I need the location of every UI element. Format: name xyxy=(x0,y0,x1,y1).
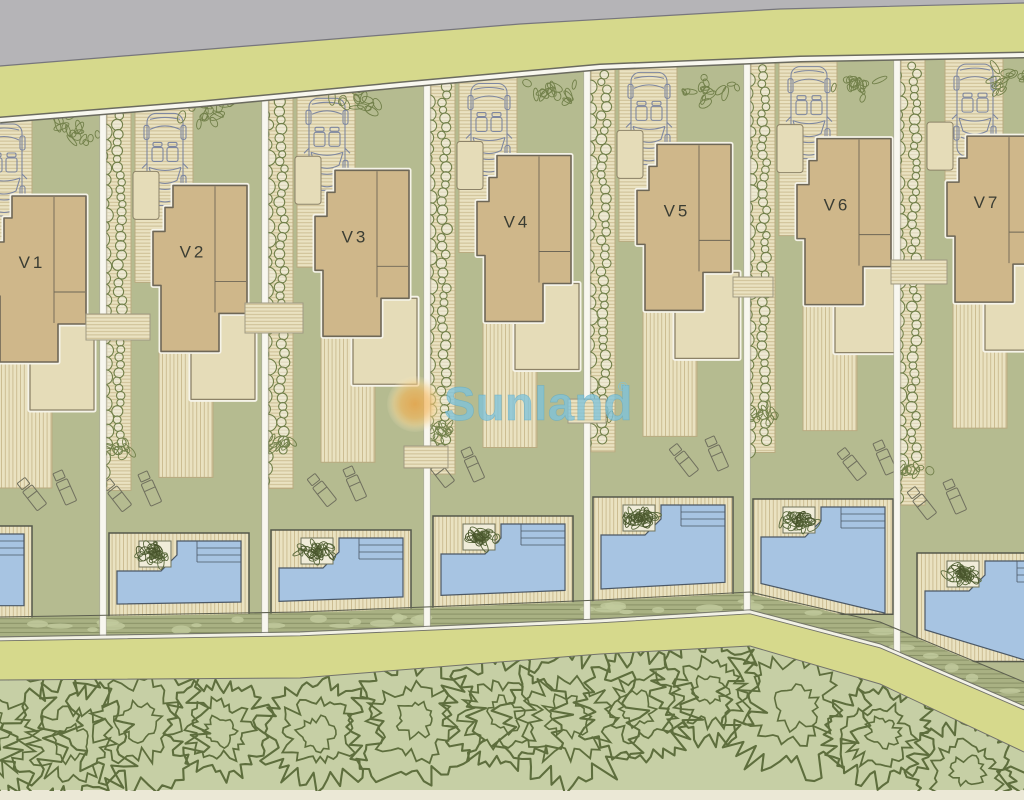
villa-label-v4: V4 xyxy=(504,213,531,232)
boundary-wall xyxy=(744,59,750,612)
pool-area xyxy=(109,533,249,620)
boundary-connector-path xyxy=(245,303,303,333)
pool-area xyxy=(271,530,411,616)
canvas-edge-strip xyxy=(0,790,1024,800)
villa-building xyxy=(947,136,1024,302)
site-plan-canvas: V1V2V3V4V5V6V7Sunland® xyxy=(0,0,1024,800)
swimming-pool xyxy=(0,534,24,606)
boundary-wall xyxy=(424,81,430,629)
boundary-connector-path xyxy=(404,446,448,468)
boundary-wall xyxy=(584,66,590,621)
boundary-connector-path xyxy=(733,277,773,297)
boundary-wall xyxy=(100,110,106,638)
villa-label-v1: V1 xyxy=(19,253,46,272)
boundary-wall xyxy=(894,55,900,653)
sunland-watermark: Sunland® xyxy=(387,376,633,432)
villa-label-v6: V6 xyxy=(824,196,851,215)
boundary-connector-path xyxy=(86,314,150,340)
villa-label-v5: V5 xyxy=(664,201,691,220)
boundary-wall xyxy=(262,96,268,635)
pool-area xyxy=(433,516,573,610)
villa-label-v7: V7 xyxy=(974,193,1001,212)
sun-logo-icon xyxy=(387,376,443,432)
villa-label-v3: V3 xyxy=(342,227,369,246)
registered-mark: ® xyxy=(618,379,628,394)
site-plan: V1V2V3V4V5V6V7Sunland® xyxy=(0,0,1024,800)
brand-name: Sunland xyxy=(444,377,633,430)
pool-area xyxy=(0,526,32,622)
villa-label-v2: V2 xyxy=(180,242,207,261)
boundary-connector-path xyxy=(891,260,947,284)
pool-area xyxy=(593,497,733,603)
